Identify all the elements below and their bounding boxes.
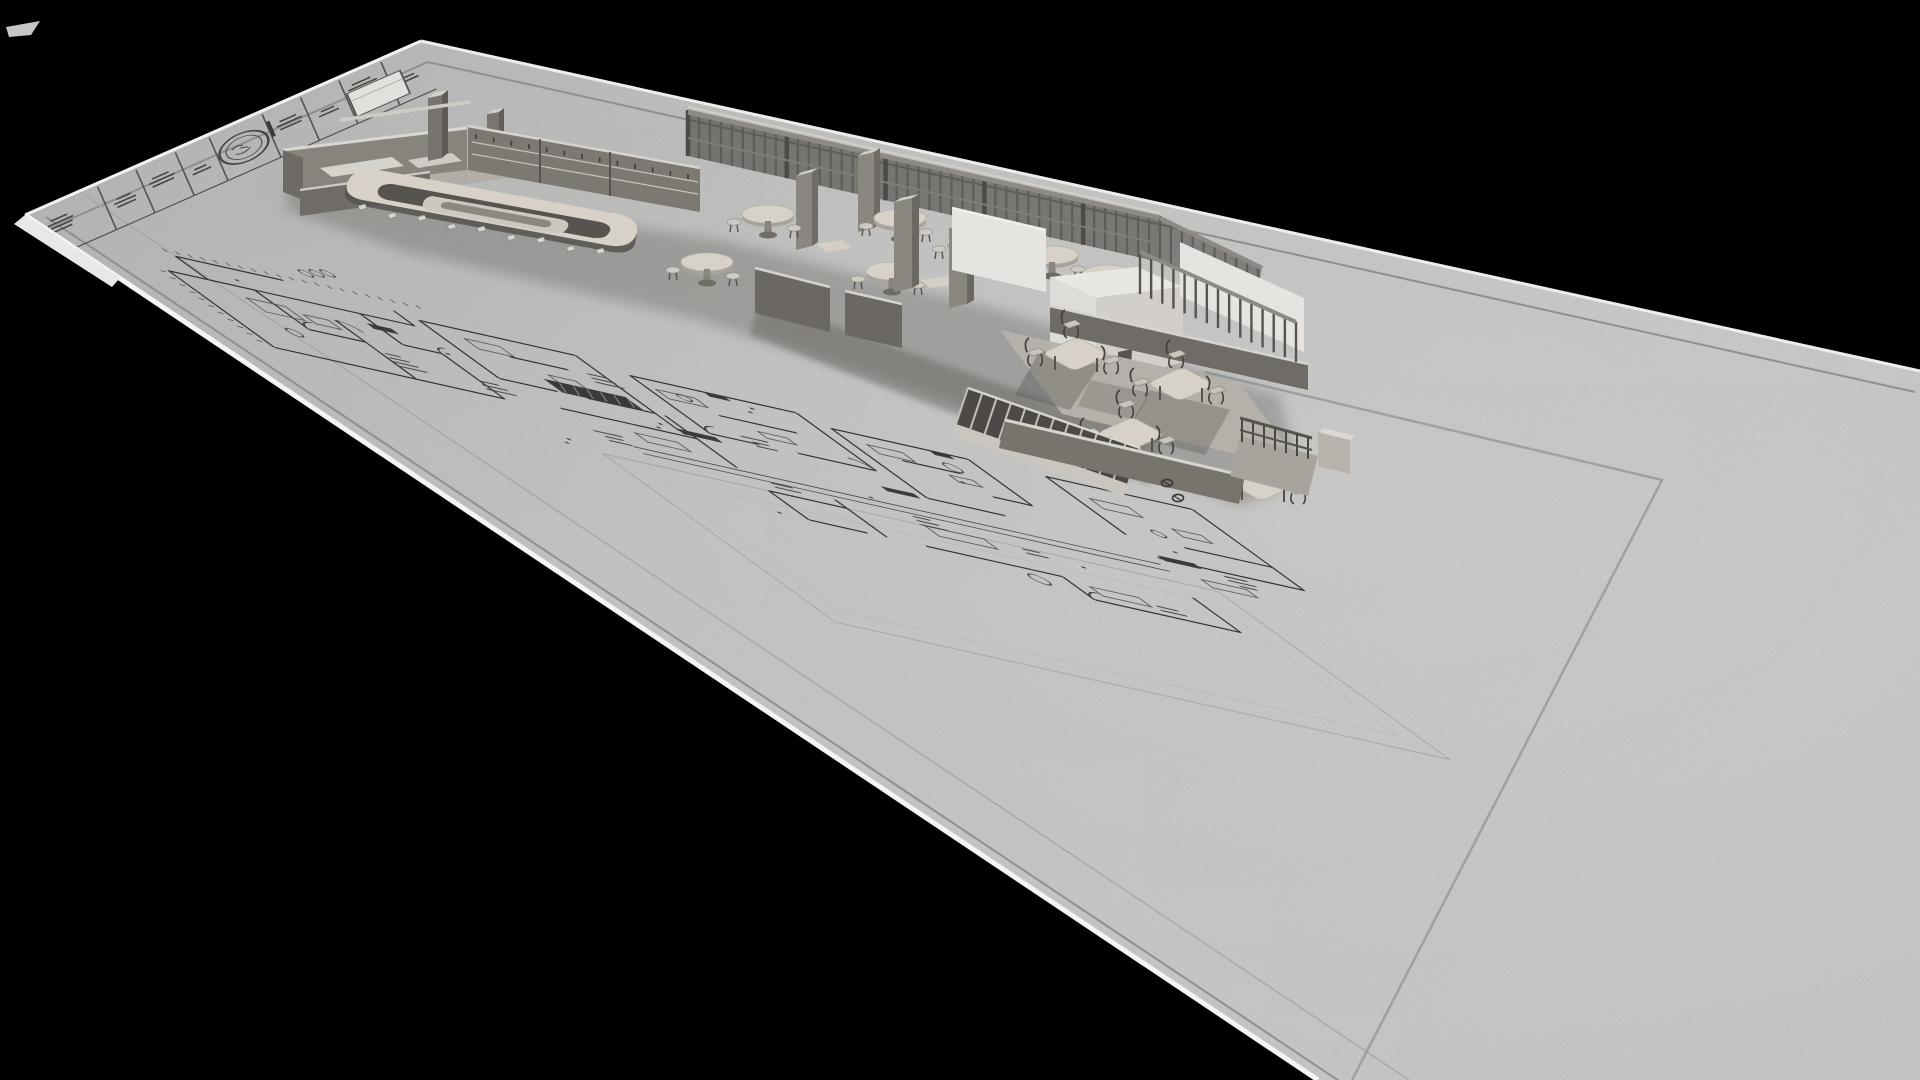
table-top bbox=[947, 232, 999, 250]
table-edge bbox=[874, 213, 926, 231]
plan-annotation bbox=[592, 430, 623, 438]
chair-leg bbox=[942, 252, 943, 259]
table-pedestal bbox=[969, 248, 977, 261]
cafe-chair bbox=[787, 225, 801, 231]
plan-dim-tick bbox=[228, 319, 234, 320]
bar-stool bbox=[418, 215, 427, 221]
plan-annotation bbox=[1156, 605, 1180, 611]
cafe-chair bbox=[919, 229, 933, 235]
strip-cell-divider bbox=[98, 187, 117, 230]
pergola-shade bbox=[688, 110, 1160, 262]
title-text-block bbox=[47, 244, 56, 249]
kitchen-block bbox=[283, 90, 520, 216]
plan-dim-tick bbox=[340, 288, 345, 291]
stair-step bbox=[1114, 443, 1126, 479]
column-pillar bbox=[949, 220, 974, 308]
plan-annotation bbox=[392, 361, 419, 368]
chair-seat bbox=[1214, 478, 1232, 486]
cafe-chair bbox=[666, 267, 680, 273]
plan-dot bbox=[564, 441, 570, 444]
table-base bbox=[883, 289, 901, 296]
plan-fixture bbox=[366, 323, 399, 334]
bar-top-ring bbox=[347, 168, 638, 246]
plan-wall bbox=[1046, 477, 1192, 510]
chair-seat bbox=[1027, 348, 1045, 356]
plan-wall bbox=[1192, 509, 1304, 590]
railing-mid-rail bbox=[1240, 430, 1312, 450]
dining-chair bbox=[1101, 346, 1121, 374]
title-text-block bbox=[149, 173, 175, 185]
plan-fixture bbox=[676, 428, 723, 443]
stair-step bbox=[956, 388, 968, 424]
plan-dim-tick bbox=[175, 251, 180, 254]
table-pedestal bbox=[888, 278, 896, 291]
table-top bbox=[742, 205, 794, 223]
pergola-slats bbox=[1160, 218, 1258, 304]
plan-dim-tick bbox=[200, 257, 205, 260]
plan-dim-tick bbox=[170, 278, 176, 279]
dining-chair bbox=[1061, 310, 1081, 338]
bar-stool bbox=[388, 213, 397, 219]
plan-wall bbox=[360, 314, 403, 345]
plan-symbol bbox=[282, 327, 307, 338]
plan-dot bbox=[1172, 551, 1178, 554]
paper-grain-overlay bbox=[0, 0, 1920, 1080]
chair-leg bbox=[730, 225, 731, 232]
plan-annotation bbox=[481, 384, 508, 391]
plan-wall bbox=[575, 355, 679, 430]
cafe-chair bbox=[1011, 260, 1025, 266]
bar-stool bbox=[477, 226, 486, 232]
table-base bbox=[698, 280, 716, 287]
plan-wall bbox=[1185, 548, 1273, 568]
lighting-vignette bbox=[0, 0, 1920, 1080]
plan-dim-tick bbox=[180, 285, 186, 286]
dining-chair bbox=[1080, 418, 1100, 446]
plan-annotation bbox=[1025, 552, 1050, 559]
blueprint-render bbox=[0, 0, 1920, 1080]
deck-outline bbox=[657, 478, 1397, 736]
dining-chair bbox=[1166, 340, 1186, 368]
dining-chair bbox=[1025, 338, 1045, 366]
plan-dim-tick bbox=[352, 291, 357, 294]
dining-back-screen bbox=[1140, 242, 1304, 362]
chair-leg bbox=[861, 282, 862, 289]
cafe-chair bbox=[726, 273, 740, 279]
stair-step bbox=[1099, 438, 1111, 474]
chair-seat bbox=[1158, 436, 1176, 444]
detail-box-line bbox=[350, 78, 403, 101]
plan-wall bbox=[335, 320, 417, 379]
plan-annotation bbox=[920, 524, 949, 532]
plan-wall bbox=[968, 459, 1032, 505]
plan-wall bbox=[419, 320, 575, 355]
plan-door-arc bbox=[696, 423, 728, 437]
plan-symbol bbox=[939, 461, 967, 474]
cafe-chair bbox=[1127, 285, 1141, 291]
deck-outline bbox=[603, 454, 1449, 760]
plan-door-arc bbox=[848, 458, 876, 471]
plan-annotation bbox=[1239, 585, 1259, 590]
title-text-block bbox=[321, 105, 335, 112]
title-text-block bbox=[402, 75, 419, 84]
cafe-table bbox=[859, 209, 933, 243]
chair-leg bbox=[669, 273, 670, 280]
plan-keynote bbox=[306, 269, 327, 279]
plan-wall bbox=[255, 290, 309, 329]
title-block-strip bbox=[31, 46, 437, 259]
strip-cell-divider bbox=[175, 152, 194, 195]
plan-fixture bbox=[543, 379, 644, 411]
chair-leg bbox=[676, 273, 677, 280]
screen-beam bbox=[1140, 252, 1296, 322]
chair-legs bbox=[1159, 442, 1173, 454]
plan-dim-tick bbox=[238, 266, 243, 269]
plan-wall bbox=[798, 453, 876, 470]
plan-wall bbox=[499, 378, 558, 391]
title-text-block bbox=[47, 247, 61, 254]
chair-seat bbox=[1250, 450, 1268, 458]
cafe-table bbox=[1067, 265, 1141, 299]
floor-plan-linework bbox=[87, 217, 1577, 788]
plan-furniture bbox=[303, 315, 341, 330]
kitchen-front-wall bbox=[300, 172, 430, 216]
white-feature-wall bbox=[952, 208, 1046, 292]
table-pedestal bbox=[1048, 262, 1056, 275]
dining-chair bbox=[1116, 390, 1136, 418]
plan-wall bbox=[309, 330, 366, 343]
plan-dim-tick bbox=[314, 283, 319, 286]
dining-room-floor bbox=[1000, 330, 1305, 470]
chair-back bbox=[1212, 468, 1216, 482]
balcony-railing bbox=[1240, 418, 1312, 459]
title-text-block bbox=[152, 171, 169, 180]
plan-annotation bbox=[594, 381, 625, 389]
sheet-edge-highlight bbox=[14, 41, 1920, 1080]
table-edge bbox=[681, 257, 733, 275]
plan-wall bbox=[274, 347, 504, 398]
plan-door-arc bbox=[335, 320, 363, 333]
roof-beam bbox=[340, 102, 470, 120]
chair-leg bbox=[1077, 285, 1078, 292]
chair-legs bbox=[1133, 384, 1147, 396]
bar-stool bbox=[447, 224, 456, 230]
title-text-block bbox=[351, 76, 370, 86]
plan-dim-tick bbox=[365, 294, 370, 297]
plan-dot bbox=[747, 411, 753, 414]
plan-wall bbox=[1095, 600, 1241, 633]
pergola-rail bbox=[688, 138, 1160, 244]
approval-stamp-icon bbox=[214, 124, 273, 171]
plan-furniture bbox=[925, 526, 998, 550]
chair-back bbox=[1166, 340, 1170, 354]
background bbox=[0, 0, 1920, 1080]
white-feature-wall bbox=[1180, 242, 1304, 352]
kitchen-counter bbox=[408, 153, 462, 168]
pergola-slats bbox=[1140, 252, 1296, 362]
plan-dim-tick bbox=[160, 271, 166, 272]
plan-dim-tick bbox=[403, 302, 408, 305]
plan-wall bbox=[769, 491, 847, 508]
blueprint-sheet bbox=[25, 41, 1920, 1080]
plan-dot bbox=[566, 438, 572, 441]
table-top bbox=[1026, 246, 1078, 264]
dining-chair bbox=[1248, 440, 1268, 468]
cafe-table bbox=[932, 232, 1006, 266]
chair-legs bbox=[1064, 326, 1078, 338]
plan-dot bbox=[776, 511, 782, 514]
title-text-block bbox=[48, 215, 74, 227]
plan-dot bbox=[234, 279, 240, 282]
plan-wall bbox=[719, 416, 797, 433]
chair-leg bbox=[1081, 272, 1082, 279]
chair-legs bbox=[1169, 356, 1183, 368]
plan-wall bbox=[403, 345, 442, 354]
plan-wall bbox=[630, 376, 710, 434]
stair-rim bbox=[968, 388, 1140, 448]
chair-seat bbox=[1290, 486, 1308, 494]
detail-box bbox=[347, 70, 410, 116]
table-base bbox=[1043, 273, 1061, 280]
stair-step bbox=[1013, 408, 1025, 444]
plan-wall bbox=[442, 354, 504, 399]
plan-annotation bbox=[1227, 580, 1257, 588]
plan-annotation bbox=[608, 440, 633, 447]
rooftop-volume bbox=[1050, 267, 1183, 386]
plan-dim-tick bbox=[188, 254, 193, 257]
plan-dot bbox=[445, 353, 451, 356]
chair-leg bbox=[922, 235, 923, 242]
stair-step bbox=[1042, 418, 1054, 454]
kitchen-front-rim bbox=[300, 172, 430, 190]
plan-fixture bbox=[703, 392, 731, 401]
plan-annotation bbox=[770, 482, 794, 488]
plan-keynote bbox=[295, 269, 316, 279]
plan-dim-tick bbox=[237, 326, 243, 327]
plan-wall bbox=[176, 256, 283, 280]
plan-wall bbox=[510, 357, 569, 370]
table-top bbox=[681, 253, 733, 271]
plan-dim-tick bbox=[416, 305, 421, 308]
title-text-block bbox=[116, 192, 131, 200]
strip-cell-divider bbox=[339, 81, 358, 124]
chair-leg bbox=[995, 258, 996, 265]
plan-fixture bbox=[880, 486, 920, 499]
cafe-tables bbox=[666, 205, 1141, 299]
chair-leg bbox=[736, 279, 737, 286]
plan-annotation bbox=[384, 353, 402, 358]
plan-symbol bbox=[1148, 529, 1169, 539]
kitchen-floor bbox=[290, 136, 520, 202]
table-base bbox=[1099, 292, 1117, 299]
sheet-border-line bbox=[34, 62, 1915, 392]
stair-step bbox=[1028, 413, 1040, 449]
plan-annotation bbox=[916, 520, 941, 527]
table-edge bbox=[947, 236, 999, 254]
plan-dim-tick bbox=[327, 285, 332, 288]
volume-left-face bbox=[1050, 277, 1096, 386]
pergola-beam bbox=[1160, 218, 1262, 268]
table-top bbox=[866, 262, 918, 280]
chair-back bbox=[1288, 476, 1292, 490]
stair-steps bbox=[956, 388, 1140, 484]
dining-partition-wall bbox=[1050, 306, 1308, 390]
dining-chair bbox=[1212, 468, 1232, 496]
shelf-line bbox=[472, 154, 698, 194]
cafe-table bbox=[1011, 246, 1085, 280]
bar-island-top bbox=[441, 202, 551, 227]
plan-furniture bbox=[465, 339, 515, 357]
chair-leg bbox=[921, 288, 922, 295]
title-text-block bbox=[277, 115, 303, 127]
plan-hatch bbox=[550, 381, 576, 395]
table-pedestal bbox=[764, 221, 772, 234]
dining-table bbox=[1130, 340, 1226, 404]
bar-stool bbox=[507, 235, 516, 241]
cafe-chair bbox=[932, 246, 946, 252]
chair-seat bbox=[1103, 356, 1121, 364]
shelf-line bbox=[472, 142, 698, 182]
plan-wall bbox=[587, 398, 655, 413]
dining-table bbox=[1080, 390, 1176, 454]
chair-legs bbox=[1291, 492, 1305, 504]
plan-annotation bbox=[912, 516, 932, 521]
bar-stool bbox=[358, 204, 367, 210]
chimney-vent bbox=[487, 108, 504, 170]
stair-step bbox=[1056, 423, 1068, 459]
plan-wall bbox=[176, 256, 208, 279]
plan-furniture bbox=[867, 445, 915, 462]
stair-step bbox=[1085, 433, 1097, 469]
plan-wall bbox=[1046, 477, 1126, 535]
pergola-slats bbox=[688, 110, 1160, 262]
bench-box bbox=[1318, 428, 1356, 474]
staircase bbox=[952, 388, 1140, 496]
dining-front-wall bbox=[999, 420, 1245, 504]
chair-leg bbox=[929, 235, 930, 242]
plan-dot bbox=[1081, 566, 1087, 569]
strip-cell-divider bbox=[301, 97, 320, 140]
service-table bbox=[920, 276, 958, 288]
plan-annotation bbox=[604, 436, 625, 442]
chair-leg bbox=[737, 225, 738, 232]
cafe-chair bbox=[727, 219, 741, 225]
chair-leg bbox=[790, 231, 791, 238]
chair-back bbox=[1130, 368, 1134, 382]
chair-leg bbox=[935, 252, 936, 259]
back-bar-shelving bbox=[468, 126, 700, 212]
cafe-chair bbox=[859, 223, 873, 229]
bar-counter bbox=[345, 168, 637, 254]
plan-furniture bbox=[635, 433, 691, 452]
title-text-block bbox=[117, 199, 136, 209]
plan-dim-tick bbox=[213, 260, 218, 263]
plan-door-arc bbox=[1080, 589, 1112, 603]
building-model bbox=[283, 90, 1356, 504]
plan-annotation bbox=[1021, 548, 1041, 553]
plan-corridor bbox=[643, 454, 1169, 572]
stair-step bbox=[970, 393, 982, 429]
chair-seat bbox=[1118, 400, 1136, 408]
railing-posts bbox=[1240, 420, 1312, 459]
dining-table-top bbox=[1232, 469, 1293, 500]
chair-leg bbox=[1074, 272, 1075, 279]
chair-leg bbox=[1021, 266, 1022, 273]
render-figure bbox=[0, 0, 1920, 1080]
strip-inner-line bbox=[51, 89, 437, 259]
chair-legs bbox=[1083, 434, 1097, 446]
plan-furniture bbox=[1090, 498, 1143, 517]
column-pillar bbox=[858, 148, 880, 232]
stair-stringer bbox=[952, 424, 1128, 496]
plan-corridor bbox=[634, 447, 1161, 565]
chair-back bbox=[1116, 390, 1120, 404]
bottle-row bbox=[476, 134, 688, 179]
title-text-block bbox=[403, 73, 415, 79]
chair-leg bbox=[862, 229, 863, 236]
chair-legs bbox=[1104, 362, 1118, 374]
column-pillar bbox=[894, 194, 919, 292]
chair-legs bbox=[1215, 484, 1229, 496]
plan-hatch bbox=[605, 393, 631, 407]
plan-wall bbox=[1063, 577, 1095, 600]
plan-dim-tick bbox=[251, 268, 256, 271]
table-pedestal bbox=[1104, 281, 1112, 294]
plan-symbol bbox=[1024, 572, 1056, 586]
stair-step bbox=[985, 398, 997, 434]
stacked-sheet-sliver bbox=[14, 215, 120, 287]
approval-stamp-icon bbox=[222, 130, 265, 164]
plan-annotation bbox=[586, 373, 608, 379]
cafe-chair bbox=[1071, 266, 1085, 272]
plan-door-arc bbox=[295, 319, 327, 333]
plan-dim-tick bbox=[378, 297, 383, 300]
plan-furniture bbox=[656, 389, 708, 407]
title-text-block bbox=[54, 224, 72, 233]
cafe-table bbox=[727, 205, 801, 239]
cafe-chair bbox=[1067, 279, 1081, 285]
plan-furniture bbox=[1202, 580, 1258, 598]
plan-dim-tick bbox=[247, 333, 253, 334]
plan-dim-tick bbox=[226, 263, 231, 266]
chair-leg bbox=[854, 282, 855, 289]
plan-wall bbox=[1158, 558, 1304, 591]
chair-leg bbox=[1002, 258, 1003, 265]
chair-leg bbox=[1130, 291, 1131, 298]
table-edge bbox=[1082, 269, 1134, 287]
sheet-border-line bbox=[46, 217, 1390, 1080]
plan-wall bbox=[796, 413, 876, 471]
plan-furniture bbox=[758, 431, 797, 445]
chair-seat bbox=[1132, 378, 1150, 386]
service-table bbox=[816, 240, 852, 252]
plan-annotation bbox=[774, 486, 802, 493]
plan-hatch bbox=[618, 396, 644, 410]
plan-wall bbox=[835, 500, 887, 538]
model-shadow-front bbox=[750, 300, 1160, 485]
cafe-chair bbox=[992, 252, 1006, 258]
furniture-symbols bbox=[1162, 479, 1184, 501]
chair-back bbox=[1248, 440, 1252, 454]
chair-leg bbox=[914, 288, 915, 295]
plan-fixture bbox=[929, 450, 955, 459]
plan-dot bbox=[657, 423, 663, 426]
dining-chair bbox=[1156, 426, 1176, 454]
table-base bbox=[964, 259, 982, 266]
plan-furniture bbox=[950, 475, 983, 487]
table-top bbox=[874, 209, 926, 227]
plan-hatch bbox=[564, 384, 590, 398]
